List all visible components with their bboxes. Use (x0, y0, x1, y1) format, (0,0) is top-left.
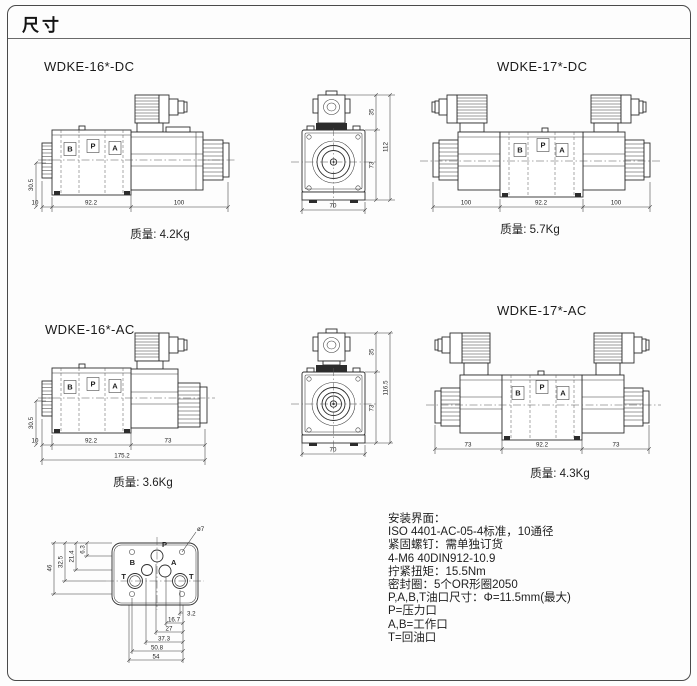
port-label-t1: T (121, 572, 126, 581)
connector (135, 95, 187, 132)
dim-label: 112 (383, 142, 390, 152)
note-line: T=回油口 (388, 632, 571, 645)
mass-label-17dc: 质量: 5.7Kg (465, 221, 595, 237)
dim-label: 100 (611, 200, 622, 207)
port-label-p: P (540, 141, 545, 150)
note-line: P,A,B,T油口尺寸：Φ=11.5mm(最大) (388, 592, 571, 605)
drawing-title-17ac: WDKE-17*-AC (497, 303, 587, 318)
dim-label: 16.7 (168, 617, 181, 624)
valve-body (502, 371, 582, 440)
dim-label: 70 (330, 203, 337, 210)
port-label-b: B (517, 146, 523, 155)
front-view-ac-drawing: 35 73 116.5 70 (283, 326, 401, 468)
port-label-a: A (560, 389, 566, 398)
mass-label-16dc: 质量: 4.2Kg (95, 226, 225, 242)
valve-body (42, 364, 131, 433)
port-label-p: P (162, 540, 167, 549)
dim-label: 54 (153, 654, 160, 661)
dim-label: 32.5 (58, 555, 65, 568)
mass-label-16ac: 质量: 3.6Kg (78, 474, 208, 490)
solenoid-tube (131, 369, 207, 428)
mass-label-17ac: 质量: 4.3Kg (495, 465, 625, 481)
connector-right (591, 95, 646, 132)
dim-label: 35 (369, 348, 376, 355)
note-line: A,B=工作口 (388, 619, 571, 632)
dim-label: 92.2 (85, 200, 98, 207)
dim-label: 100 (174, 200, 185, 207)
dim-label: 46 (47, 564, 54, 571)
port-label-a: A (171, 558, 177, 567)
port-label-b: B (67, 145, 73, 154)
wdke-17-ac-drawing: B P A 73 92.2 73 (418, 325, 697, 488)
dim-label: 30.5 (28, 416, 35, 429)
drawing-title-17dc: WDKE-17*-DC (497, 59, 587, 74)
header-divider (8, 38, 690, 39)
port-label-b: B (515, 389, 521, 398)
dim-label: 27 (166, 626, 173, 633)
port-label-b: B (130, 558, 136, 567)
dim-label: 100 (461, 200, 472, 207)
dim-label: 73 (369, 404, 376, 411)
connector-front (313, 329, 350, 372)
port-label-a: A (112, 144, 118, 153)
port-label-p: P (90, 380, 95, 389)
mounting-interface-drawing: P B A T T ø7 6.3 21.4 32.5 46 3.2 16.7 2… (30, 518, 215, 686)
dim-label: 6.3 (80, 545, 87, 554)
wdke-16-ac-drawing: B P A 10 92.2 73 175.2 30.5 (30, 325, 265, 495)
connector (135, 333, 187, 369)
note-line: 拧紧扭矩：15.5Nm (388, 566, 571, 579)
datasheet-page: 尺寸 WDKE-16*-DC WDKE-17*-DC WDKE-16*-AC W… (0, 0, 697, 686)
dim-label: 92.2 (536, 442, 549, 449)
note-line: 安装界面： (388, 513, 571, 526)
dim-label: 21.4 (69, 550, 76, 563)
dim-label: 30.5 (28, 178, 35, 191)
note-line: 密封圈：5个OR形圈2050 (388, 579, 571, 592)
dim-label: 73 (613, 442, 620, 449)
dim-label: 92.2 (535, 200, 548, 207)
dim-label: 73 (465, 442, 472, 449)
dim-label: 35 (369, 108, 376, 115)
port-label-a: A (112, 382, 118, 391)
note-line: P=压力口 (388, 605, 571, 618)
port-label-p: P (539, 383, 544, 392)
port-label-p: P (90, 142, 95, 151)
diameter-callout: ø7 (197, 526, 205, 533)
connector-right (594, 333, 649, 375)
drawing-title-16dc: WDKE-16*-DC (44, 59, 134, 74)
port-label-a: A (559, 146, 565, 155)
port-label-b: B (67, 383, 73, 392)
connector-left (432, 95, 487, 132)
dim-label: 73 (369, 161, 376, 168)
note-line: 4-M6 40DIN912-10.9 (388, 553, 571, 566)
connector-left (435, 333, 490, 375)
dim-label: 70 (330, 447, 337, 454)
solenoid-tube (131, 127, 229, 190)
dim-label: 37.3 (158, 636, 171, 643)
dim-label: 175.2 (114, 453, 130, 460)
notes-block: 安装界面： ISO 4401-AC-05-4标准，10通径 紧固螺钉：需单独订货… (388, 513, 571, 645)
valve-body (42, 126, 131, 195)
connector-front (313, 91, 350, 130)
left-dimensions: 6.3 21.4 32.5 46 (47, 541, 113, 596)
page-title: 尺寸 (22, 11, 62, 36)
dim-label: 116.5 (383, 380, 390, 396)
dim-label: 50.8 (151, 645, 164, 652)
dim-label: 92.2 (85, 438, 98, 445)
port-label-t2: T (189, 572, 194, 581)
note-line: 紧固螺钉：需单独订货 (388, 539, 571, 552)
dim-label: 3.2 (187, 611, 196, 618)
dim-label: 73 (165, 438, 172, 445)
subplate: P B A T T ø7 (106, 526, 205, 610)
front-view-dc-drawing: 35 73 112 70 (283, 90, 401, 225)
note-line: ISO 4401-AC-05-4标准，10通径 (388, 526, 571, 539)
